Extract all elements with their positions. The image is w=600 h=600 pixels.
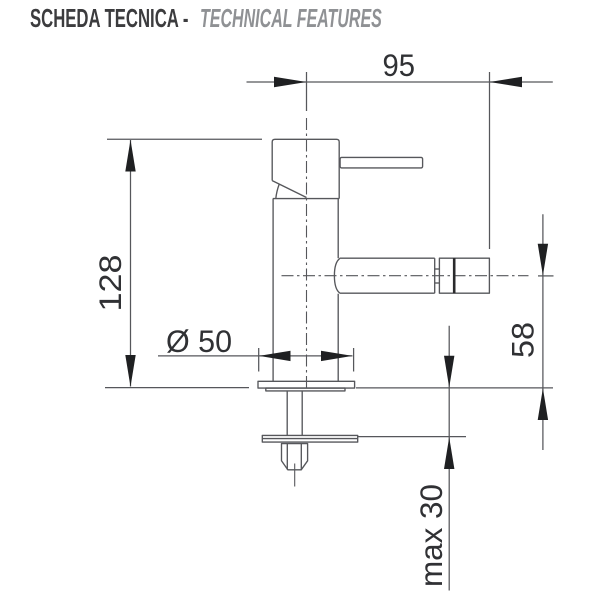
- svg-text:SCHEDA TECNICA -: SCHEDA TECNICA -: [30, 3, 188, 33]
- svg-text:TECHNICAL FEATURES: TECHNICAL FEATURES: [200, 4, 382, 33]
- svg-text:max 30: max 30: [413, 484, 449, 587]
- svg-text:95: 95: [383, 47, 416, 83]
- svg-text:Ø 50: Ø 50: [166, 323, 232, 359]
- svg-text:58: 58: [505, 322, 541, 358]
- svg-text:128: 128: [92, 255, 128, 312]
